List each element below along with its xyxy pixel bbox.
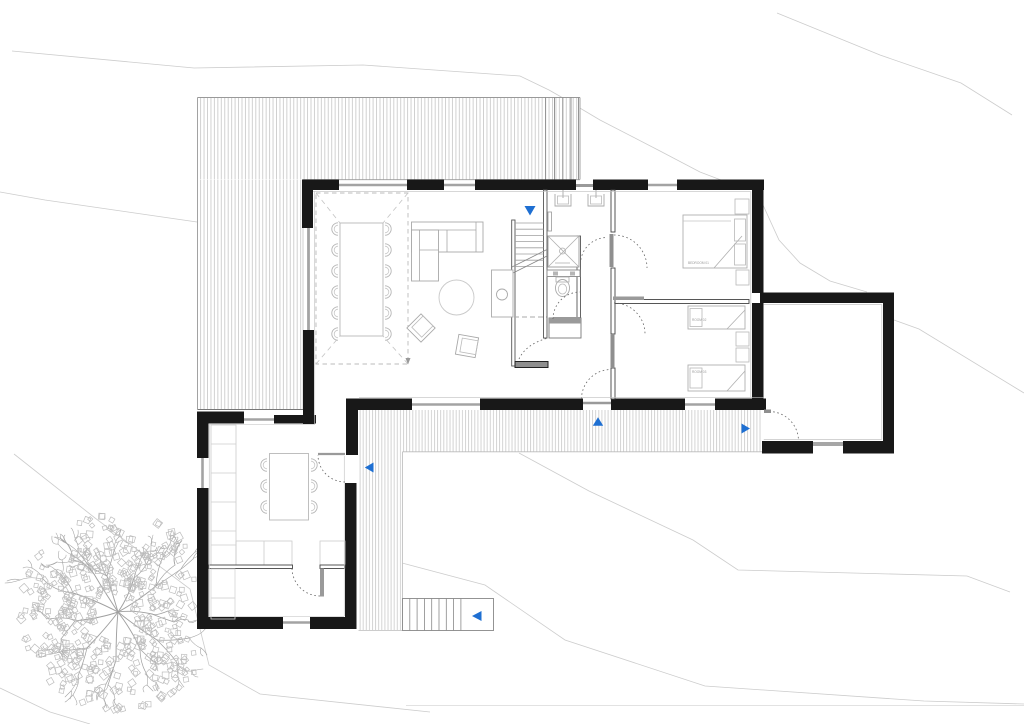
svg-text:ROOM 03: ROOM 03	[692, 370, 707, 374]
svg-text:BEDROOM 01: BEDROOM 01	[688, 261, 709, 265]
svg-text:ROOM 02: ROOM 02	[692, 318, 707, 322]
